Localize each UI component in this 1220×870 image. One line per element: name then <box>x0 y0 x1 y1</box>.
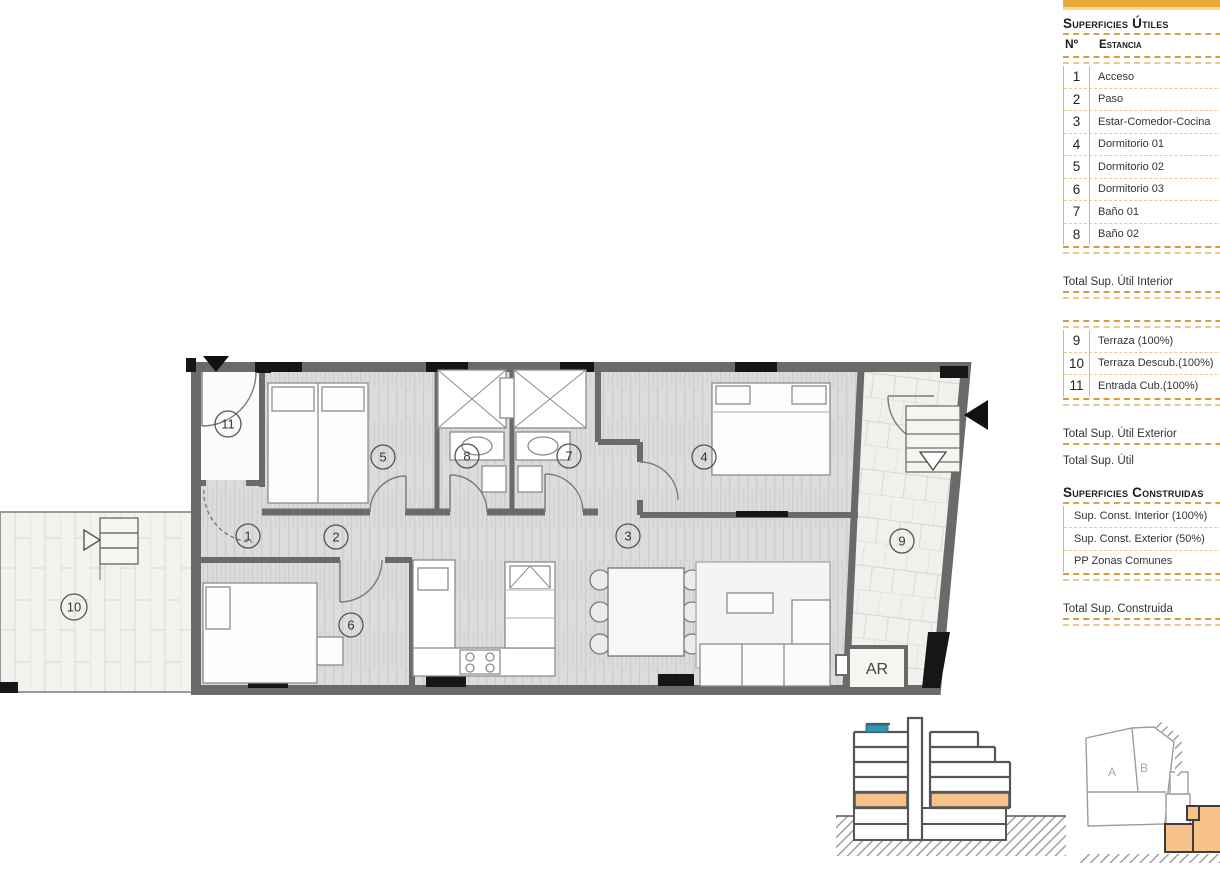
window-marker <box>0 682 18 693</box>
svg-text:10: 10 <box>67 600 81 615</box>
svg-text:6: 6 <box>347 618 354 633</box>
table-row: 1Acceso <box>1064 66 1220 89</box>
column-header-no: Nº <box>1063 37 1091 51</box>
block-b-label: B <box>1140 761 1148 775</box>
exterior-rooms-table: 9Terraza (100%) 10Terraza Descub.(100%) … <box>1063 330 1220 397</box>
table-row: Sup. Const. Exterior (50%) <box>1064 528 1220 551</box>
ar-closet: AR <box>836 647 906 689</box>
total-useful-label: Total Sup. Útil <box>1063 453 1220 469</box>
table-header: Nº Estancia <box>1063 37 1220 55</box>
divider <box>1063 246 1220 254</box>
terrace-9-stairs <box>906 406 960 472</box>
svg-text:1: 1 <box>244 529 251 544</box>
svg-text:11: 11 <box>221 417 235 432</box>
table-row: 4Dormitorio 01 <box>1064 134 1220 157</box>
table-row: 3Estar-Comedor-Cocina <box>1064 111 1220 134</box>
table-row: Sup. Const. Interior (100%) <box>1064 506 1220 529</box>
table-row: 7Baño 01 <box>1064 201 1220 224</box>
table-row: 8Baño 02 <box>1064 224 1220 246</box>
svg-text:4: 4 <box>700 450 707 465</box>
table-row: 11Entrada Cub.(100%) <box>1064 375 1220 397</box>
blue-unit-marker <box>866 725 888 732</box>
divider <box>1063 618 1220 626</box>
table-row: 2Paso <box>1064 89 1220 112</box>
building-section-diagram <box>830 714 1070 866</box>
total-interior-label: Total Sup. Útil Interior <box>1063 274 1220 290</box>
block-a-label: A <box>1108 765 1116 779</box>
divider <box>1063 320 1220 328</box>
site-key-plan: A B <box>1080 714 1220 869</box>
table-row: 9Terraza (100%) <box>1064 330 1220 353</box>
constructed-areas-title: Superficies Construidas <box>1063 485 1220 500</box>
highlight-floor-left <box>855 793 907 807</box>
panel-top-bar-light <box>1063 7 1220 10</box>
panel-top-bar <box>1063 0 1220 7</box>
divider <box>1063 443 1220 445</box>
table-row: 10Terraza Descub.(100%) <box>1064 353 1220 376</box>
highlight-unit-small <box>1165 824 1193 852</box>
table-row: 6Dormitorio 03 <box>1064 179 1220 202</box>
bed-room5 <box>268 383 368 503</box>
svg-text:2: 2 <box>332 530 339 545</box>
svg-text:3: 3 <box>624 529 631 544</box>
stove-icon <box>460 650 500 674</box>
divider <box>1063 33 1220 35</box>
interior-rooms-table: 1Acceso 2Paso 3Estar-Comedor-Cocina 4Dor… <box>1063 66 1220 245</box>
table-row: PP Zonas Comunes <box>1064 551 1220 573</box>
divider <box>1063 398 1220 406</box>
svg-text:8: 8 <box>463 449 470 464</box>
bed-room4 <box>712 383 830 475</box>
tv-icon <box>736 511 788 517</box>
svg-text:7: 7 <box>565 449 572 464</box>
dining-set <box>590 568 702 656</box>
entrance-arrow-right <box>964 400 988 430</box>
column-header-room: Estancia <box>1091 39 1142 51</box>
constructed-table: Sup. Const. Interior (100%) Sup. Const. … <box>1063 506 1220 573</box>
useful-areas-title: Superficies Útiles <box>1063 16 1220 31</box>
divider <box>1063 502 1220 504</box>
divider <box>1063 291 1220 299</box>
highlight-floor-right <box>931 793 1009 807</box>
drawing-sheet: AR 1 2 3 4 5 6 7 8 9 10 11 <box>0 0 1220 870</box>
terrace-10-area <box>0 512 192 693</box>
total-constructed-label: Total Sup. Construida <box>1063 601 1220 617</box>
ar-label: AR <box>866 661 888 678</box>
floor-plan: AR 1 2 3 4 5 6 7 8 9 10 11 <box>0 0 1000 730</box>
total-exterior-label: Total Sup. Útil Exterior <box>1063 426 1220 442</box>
divider <box>1063 56 1220 64</box>
svg-text:9: 9 <box>898 534 905 549</box>
table-row: 5Dormitorio 02 <box>1064 156 1220 179</box>
svg-text:5: 5 <box>379 450 386 465</box>
area-table-panel: Superficies Útiles Nº Estancia 1Acceso 2… <box>1063 0 1220 628</box>
divider <box>1063 573 1220 581</box>
